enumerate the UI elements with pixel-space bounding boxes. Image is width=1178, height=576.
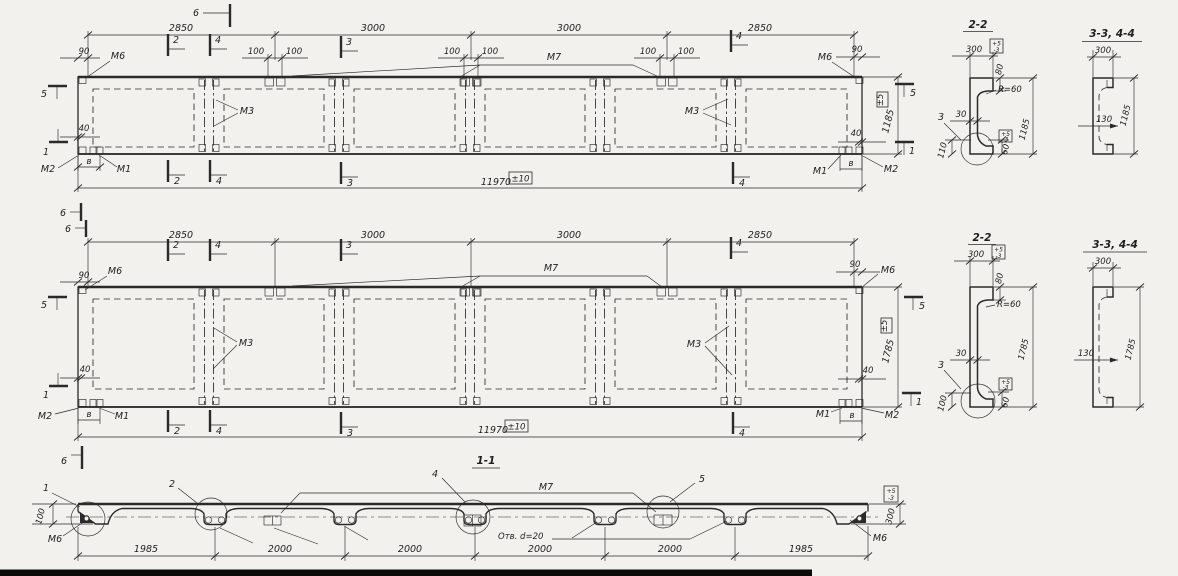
section-mark-5: 5 bbox=[41, 89, 47, 100]
dim-v: в bbox=[849, 411, 854, 421]
dim-300: 300 bbox=[966, 45, 982, 55]
detail-label-3: 3 bbox=[938, 360, 944, 371]
dim-span: 2000 bbox=[398, 544, 422, 555]
embed-label-m3: М3 bbox=[240, 106, 254, 117]
embed-label-m6: М6 bbox=[48, 534, 62, 545]
edge-embeds bbox=[79, 288, 863, 407]
embed-label-m1: М1 bbox=[816, 409, 830, 420]
section-mark-3: 3 bbox=[347, 178, 353, 189]
tolerance-plus: +5 bbox=[887, 488, 896, 495]
embed-label-m6: М6 bbox=[881, 265, 895, 276]
dim-30: 30 bbox=[956, 110, 967, 120]
embed-label-m3: М3 bbox=[685, 106, 699, 117]
dim-span: 3000 bbox=[361, 23, 385, 34]
section-1-1: 1-1 6 М7 1 2 4 5 Отв. d=20 bbox=[32, 446, 906, 561]
dim-100: 100 bbox=[444, 47, 460, 57]
detail-label-4: 4 bbox=[432, 469, 438, 480]
web-offset-dim: 130 bbox=[1074, 349, 1118, 363]
holes-note: Отв. d=20 bbox=[498, 532, 543, 542]
drawing-sheet: 2850 3000 3000 2850 100 100 100 100 100 … bbox=[0, 0, 1178, 576]
section-mark-4: 4 bbox=[739, 178, 745, 189]
dim-110: 110 bbox=[936, 141, 950, 159]
dim-100: 100 bbox=[482, 47, 498, 57]
total-length-dim: 11970 ±10 bbox=[74, 156, 866, 192]
dim-span: 3000 bbox=[557, 230, 581, 241]
section-title: 1-1 bbox=[477, 455, 496, 467]
section-mark-4: 4 bbox=[216, 426, 222, 437]
dim-40: 40 bbox=[79, 124, 90, 134]
embed-label-m2: М2 bbox=[41, 164, 55, 175]
dim-span: 2850 bbox=[748, 230, 772, 241]
panel-drawing: 2850 3000 3000 2850 100 100 100 100 100 … bbox=[0, 0, 1178, 576]
tolerance-minus: -3 bbox=[994, 47, 1000, 54]
total-length-dim: 11970 ±10 bbox=[74, 409, 866, 441]
embed-label-m6: М6 bbox=[818, 52, 832, 63]
dim-100: 100 bbox=[286, 47, 302, 57]
embed-label-m1: М1 bbox=[115, 411, 129, 422]
hidden-contours bbox=[93, 89, 847, 147]
dim-90: 90 bbox=[852, 45, 863, 55]
tolerance-minus: -3 bbox=[888, 495, 894, 502]
dim-300: 300 bbox=[884, 507, 898, 525]
section-2-2-lower: 2-2 300 +5 -3 80 R=60 30 3 100 60 +5 -3 bbox=[936, 232, 1037, 418]
dim-span: 3000 bbox=[361, 230, 385, 241]
detail-label-3: 3 bbox=[938, 112, 944, 123]
embed-label-m6: М6 bbox=[111, 51, 125, 62]
dim-radius: R=60 bbox=[997, 300, 1021, 310]
panel-height-dim: 1785 ±5 bbox=[863, 284, 902, 411]
section-mark-2: 2 bbox=[174, 176, 180, 187]
section-mark-4: 4 bbox=[216, 176, 222, 187]
section-mark-6: 6 bbox=[65, 224, 71, 235]
section-mark-5: 5 bbox=[910, 88, 916, 99]
dim-height-tolerance: ±5 bbox=[880, 320, 890, 333]
dim-total-length: 11970 bbox=[478, 425, 508, 436]
width-dim: 300 bbox=[1087, 46, 1121, 77]
dim-1785: 1785 bbox=[1124, 338, 1139, 361]
section-mark-6: 6 bbox=[60, 208, 66, 219]
dim-30: 30 bbox=[956, 349, 967, 359]
m7-label-group: М7 bbox=[292, 263, 662, 287]
section-mark-3: 3 bbox=[347, 428, 353, 439]
section-mark-6: 6 bbox=[61, 456, 67, 467]
dim-40: 40 bbox=[863, 366, 874, 376]
tolerance-minus: -3 bbox=[1003, 137, 1009, 144]
section-2-2-upper: 2-2 300 +5 -3 80 R=60 30 3 110 60 +5 -3 bbox=[936, 19, 1037, 165]
dim-span: 2850 bbox=[169, 23, 193, 34]
section-mark-6: 6 bbox=[193, 8, 199, 19]
dim-100: 100 bbox=[248, 47, 264, 57]
section-mark-4: 4 bbox=[215, 35, 221, 46]
lip-dim: 80 bbox=[993, 272, 1006, 303]
dim-span: 2000 bbox=[658, 544, 682, 555]
embed-label-m6: М6 bbox=[873, 533, 887, 544]
detail-label-5: 5 bbox=[699, 474, 705, 485]
section-mark-1: 1 bbox=[909, 146, 915, 157]
dim-300: 300 bbox=[968, 250, 984, 260]
m7-label-group: М7 bbox=[292, 52, 659, 77]
embed-label-m7: М7 bbox=[544, 263, 558, 274]
m7-leader-group: М7 bbox=[281, 482, 656, 513]
dim-80: 80 bbox=[994, 63, 1006, 76]
bottom-lip-dim: 60 +5 -3 bbox=[988, 378, 1012, 411]
plan-view-middle-panel: 2850 3000 3000 2850 90 90 М6 М6 М7 М3 М3… bbox=[38, 203, 925, 441]
corner-embed-labels: М2 в М1 М1 в М2 bbox=[41, 155, 898, 177]
embed-label-m2: М2 bbox=[885, 410, 899, 421]
section-mark-3: 3 bbox=[346, 37, 352, 48]
dim-300: 300 bbox=[1095, 257, 1111, 267]
dim-130: 130 bbox=[1096, 115, 1112, 125]
section-title: 2-2 bbox=[969, 19, 988, 31]
embed-label-m7: М7 bbox=[547, 52, 561, 63]
embed-label-m1: М1 bbox=[813, 166, 827, 177]
bottom-dimension-chain: 1985 2000 2000 2000 2000 1985 bbox=[74, 526, 872, 561]
panel-height-dim: 1185 ±5 bbox=[863, 74, 902, 158]
dim-span: 1985 bbox=[134, 544, 158, 555]
dim-v: в bbox=[86, 157, 91, 167]
dim-height-tolerance: ±5 bbox=[876, 94, 886, 107]
radius-label: R=60 bbox=[986, 300, 1021, 310]
section-mark-4: 4 bbox=[739, 428, 745, 439]
section-mark-1: 1 bbox=[43, 147, 49, 158]
embed-label-m7: М7 bbox=[539, 482, 553, 493]
height-dim: 1185 bbox=[1114, 75, 1138, 158]
radius-label: R=60 bbox=[986, 85, 1022, 95]
section-mark-4: 4 bbox=[736, 31, 742, 42]
corner-40-dims: 40 40 bbox=[60, 124, 886, 146]
end-anchors-m6 bbox=[80, 512, 866, 523]
dim-300: 300 bbox=[1095, 46, 1111, 56]
detail-label-1: 1 bbox=[43, 483, 49, 494]
dim-total-tolerance: ±10 bbox=[512, 175, 530, 185]
plan-view-top-panel: 2850 3000 3000 2850 100 100 100 100 100 … bbox=[41, 4, 916, 192]
section-mark-2: 2 bbox=[174, 426, 180, 437]
embed-label-m6: М6 bbox=[108, 266, 122, 277]
dim-panel-height: 1185 bbox=[880, 108, 897, 134]
section-mark-4: 4 bbox=[736, 238, 742, 249]
m3-labels: М3 М3 bbox=[213, 326, 732, 375]
left-m6-label: М6 bbox=[48, 521, 85, 545]
tolerance-minus: -3 bbox=[1003, 385, 1009, 392]
dim-span: 2850 bbox=[748, 23, 772, 34]
dim-100: 100 bbox=[678, 47, 694, 57]
width-dim: 300 bbox=[1087, 257, 1121, 286]
dim-v: в bbox=[848, 159, 853, 169]
dim-80: 80 bbox=[994, 272, 1006, 285]
section-3-3-4-4-upper: 3-3, 4-4 300 130 1185 bbox=[1078, 28, 1142, 158]
height-dim: 1785 bbox=[1114, 284, 1144, 411]
section-mark-1: 1 bbox=[43, 390, 49, 401]
section-title: 3-3, 4-4 bbox=[1089, 28, 1135, 40]
section-mark-2: 2 bbox=[173, 240, 179, 251]
scan-band bbox=[0, 570, 812, 576]
dim-130: 130 bbox=[1078, 349, 1094, 359]
corner-40-dims: 40 40 bbox=[60, 365, 886, 383]
rib-holes bbox=[205, 517, 744, 523]
dim-panel-height: 1785 bbox=[880, 338, 897, 364]
dim-90: 90 bbox=[79, 47, 90, 57]
dim-1185: 1185 bbox=[1119, 104, 1134, 127]
section-mark-6-group: 6 bbox=[61, 446, 82, 469]
section-mark-1: 1 bbox=[916, 397, 922, 408]
dim-span: 3000 bbox=[557, 23, 581, 34]
dim-90: 90 bbox=[79, 271, 90, 281]
embed-label-m1: М1 bbox=[117, 164, 131, 175]
dim-span: 2000 bbox=[268, 544, 292, 555]
dim-radius: R=60 bbox=[998, 85, 1022, 95]
edge-90-dims: 90 90 bbox=[60, 45, 880, 62]
transverse-ribs bbox=[199, 79, 741, 152]
dim-total-tolerance: ±10 bbox=[508, 423, 526, 433]
section-mark-2: 2 bbox=[173, 35, 179, 46]
embed-label-m3: М3 bbox=[239, 338, 253, 349]
dim-1785: 1785 bbox=[1017, 338, 1032, 361]
dim-100: 100 bbox=[640, 47, 656, 57]
detail-label-2: 2 bbox=[169, 479, 175, 490]
dim-40: 40 bbox=[851, 129, 862, 139]
transverse-ribs bbox=[199, 289, 741, 405]
detail-callouts: 1 2 4 5 bbox=[43, 469, 705, 536]
section-3-3-4-4-lower: 3-3, 4-4 300 130 1785 bbox=[1074, 239, 1147, 411]
foot-dim: 100 bbox=[936, 390, 971, 413]
hidden-contours bbox=[93, 299, 847, 389]
foot-dim: 110 bbox=[936, 137, 971, 160]
section-mark-3: 3 bbox=[346, 240, 352, 251]
dim-span: 1985 bbox=[789, 544, 813, 555]
dim-v: в bbox=[86, 410, 91, 420]
section-title: 2-2 bbox=[973, 232, 992, 244]
dim-total-length: 11970 bbox=[481, 177, 511, 188]
embed-label-m2: М2 bbox=[884, 164, 898, 175]
dim-1185: 1185 bbox=[1018, 118, 1033, 141]
embed-label-m2: М2 bbox=[38, 411, 52, 422]
dim-90: 90 bbox=[850, 260, 861, 270]
web-offset-dim: 130 bbox=[1078, 115, 1118, 129]
section-mark-5: 5 bbox=[41, 300, 47, 311]
tolerance-minus: -3 bbox=[996, 253, 1002, 260]
section-mark-4: 4 bbox=[215, 240, 221, 251]
m3-labels: М3 М3 bbox=[214, 99, 731, 126]
dim-100: 100 bbox=[936, 394, 950, 412]
right-m6-label: М6 bbox=[850, 520, 887, 544]
dim-span: 2000 bbox=[528, 544, 552, 555]
dim-40: 40 bbox=[80, 365, 91, 375]
section-title: 3-3, 4-4 bbox=[1092, 239, 1138, 251]
embed-label-m3: М3 bbox=[687, 339, 701, 350]
section-mark-5: 5 bbox=[919, 301, 925, 312]
dim-100: 100 bbox=[34, 507, 48, 525]
edge-embeds bbox=[79, 78, 863, 155]
